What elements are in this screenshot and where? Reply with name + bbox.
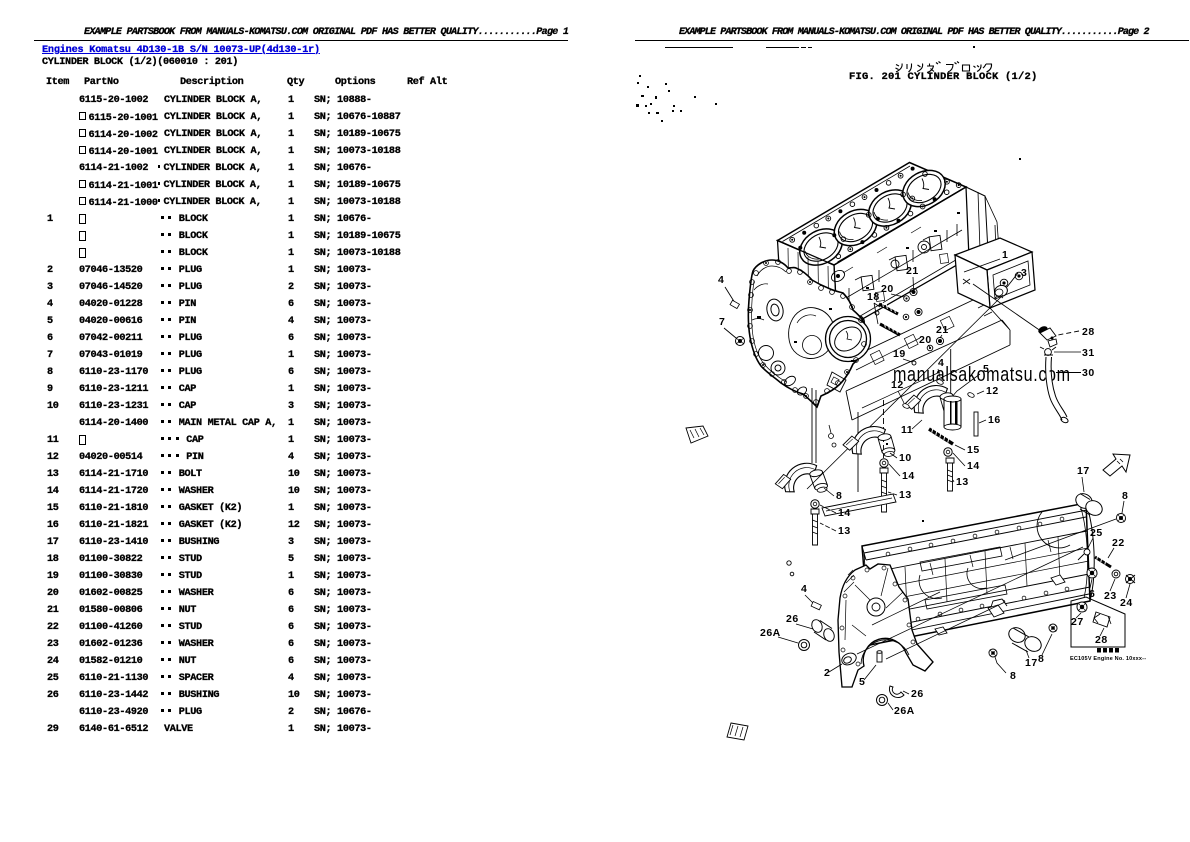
svg-text:17: 17 <box>1025 657 1038 669</box>
svg-text:5: 5 <box>983 363 989 375</box>
svg-text:24: 24 <box>1120 597 1133 609</box>
svg-text:20: 20 <box>881 283 894 295</box>
svg-text:12: 12 <box>986 385 999 397</box>
svg-text:5: 5 <box>859 676 865 688</box>
svg-text:7: 7 <box>719 316 725 328</box>
svg-text:26: 26 <box>786 613 799 625</box>
svg-text:26A: 26A <box>760 627 781 639</box>
svg-text:12: 12 <box>891 379 904 391</box>
svg-text:8: 8 <box>1010 670 1016 682</box>
svg-text:14: 14 <box>838 507 851 519</box>
svg-text:13: 13 <box>956 476 969 488</box>
svg-text:27: 27 <box>1071 616 1084 628</box>
svg-text:1: 1 <box>1002 249 1008 261</box>
svg-text:21: 21 <box>936 324 949 336</box>
svg-text:30: 30 <box>1082 367 1095 379</box>
svg-text:4: 4 <box>938 357 944 369</box>
svg-text:15: 15 <box>967 444 980 456</box>
svg-text:25: 25 <box>1090 527 1103 539</box>
svg-text:4: 4 <box>801 583 807 595</box>
svg-text:13: 13 <box>838 525 851 537</box>
svg-text:16: 16 <box>988 414 1001 426</box>
svg-text:28: 28 <box>1095 634 1108 646</box>
svg-text:31: 31 <box>1082 347 1095 359</box>
svg-text:26A: 26A <box>894 705 915 717</box>
svg-text:11: 11 <box>901 424 913 436</box>
svg-text:manualsakomatsu.com: manualsakomatsu.com <box>893 363 1071 385</box>
svg-text:8: 8 <box>1122 490 1128 502</box>
svg-text:22: 22 <box>1112 537 1125 549</box>
svg-text:8: 8 <box>1038 653 1044 665</box>
svg-text:19: 19 <box>893 348 906 360</box>
svg-text:13: 13 <box>899 489 912 501</box>
svg-text:28: 28 <box>1082 326 1095 338</box>
svg-text:21: 21 <box>906 265 919 277</box>
svg-text:2: 2 <box>824 667 830 679</box>
svg-text:26: 26 <box>911 688 924 700</box>
svg-text:4: 4 <box>718 274 724 286</box>
svg-text:18: 18 <box>867 291 880 303</box>
svg-text:8: 8 <box>836 490 842 502</box>
svg-text:3: 3 <box>1021 267 1027 279</box>
svg-text:20: 20 <box>919 334 932 346</box>
svg-text:10: 10 <box>899 452 912 464</box>
svg-text:14: 14 <box>967 460 980 472</box>
svg-text:14: 14 <box>902 470 915 482</box>
svg-text:EC105V Engine No. 10xxx--: EC105V Engine No. 10xxx-- <box>1070 656 1146 662</box>
svg-text:17: 17 <box>1077 465 1090 477</box>
svg-text:23: 23 <box>1104 590 1117 602</box>
